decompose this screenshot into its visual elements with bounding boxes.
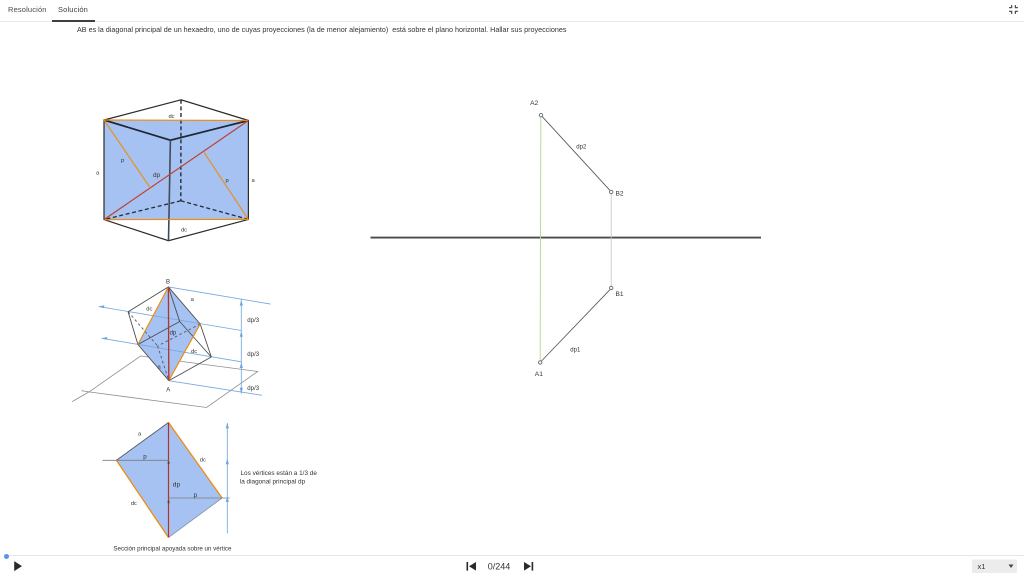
svg-text:dc: dc — [191, 349, 197, 355]
svg-text:a: a — [252, 178, 256, 184]
svg-text:a: a — [138, 432, 142, 438]
svg-text:dc: dc — [181, 228, 187, 234]
svg-text:p: p — [121, 158, 124, 164]
svg-text:A: A — [166, 387, 170, 393]
svg-text:la diagonal principal dp: la diagonal principal dp — [240, 478, 306, 485]
svg-text:B1: B1 — [616, 291, 624, 298]
svg-text:dp2: dp2 — [576, 144, 587, 150]
svg-text:Los vértices están a 1/3 de: Los vértices están a 1/3 de — [241, 470, 318, 477]
svg-text:p: p — [194, 492, 198, 499]
svg-text:dc: dc — [131, 501, 137, 507]
svg-text:a: a — [191, 297, 195, 303]
svg-text:A1: A1 — [535, 371, 543, 378]
svg-text:A2: A2 — [530, 100, 538, 107]
svg-text:dp: dp — [170, 330, 177, 336]
svg-text:dp: dp — [153, 172, 161, 179]
svg-text:p: p — [226, 178, 229, 184]
svg-text:B2: B2 — [616, 190, 624, 197]
svg-text:a: a — [96, 171, 100, 177]
svg-text:x1: x1 — [978, 562, 986, 571]
svg-text:dc: dc — [168, 114, 174, 120]
svg-text:0/244: 0/244 — [488, 561, 511, 571]
svg-text:dp/3: dp/3 — [247, 351, 259, 358]
svg-text:B: B — [166, 280, 170, 286]
svg-text:Sección principal apoyada sobr: Sección principal apoyada sobre un vérti… — [113, 545, 232, 552]
svg-text:dp/3: dp/3 — [247, 385, 259, 392]
svg-text:dp1: dp1 — [570, 347, 581, 353]
svg-text:dc: dc — [200, 458, 206, 464]
svg-text:dp: dp — [173, 481, 181, 488]
svg-text:dp/3: dp/3 — [247, 317, 259, 324]
svg-text:p: p — [143, 454, 147, 461]
svg-text:dc: dc — [146, 306, 152, 312]
